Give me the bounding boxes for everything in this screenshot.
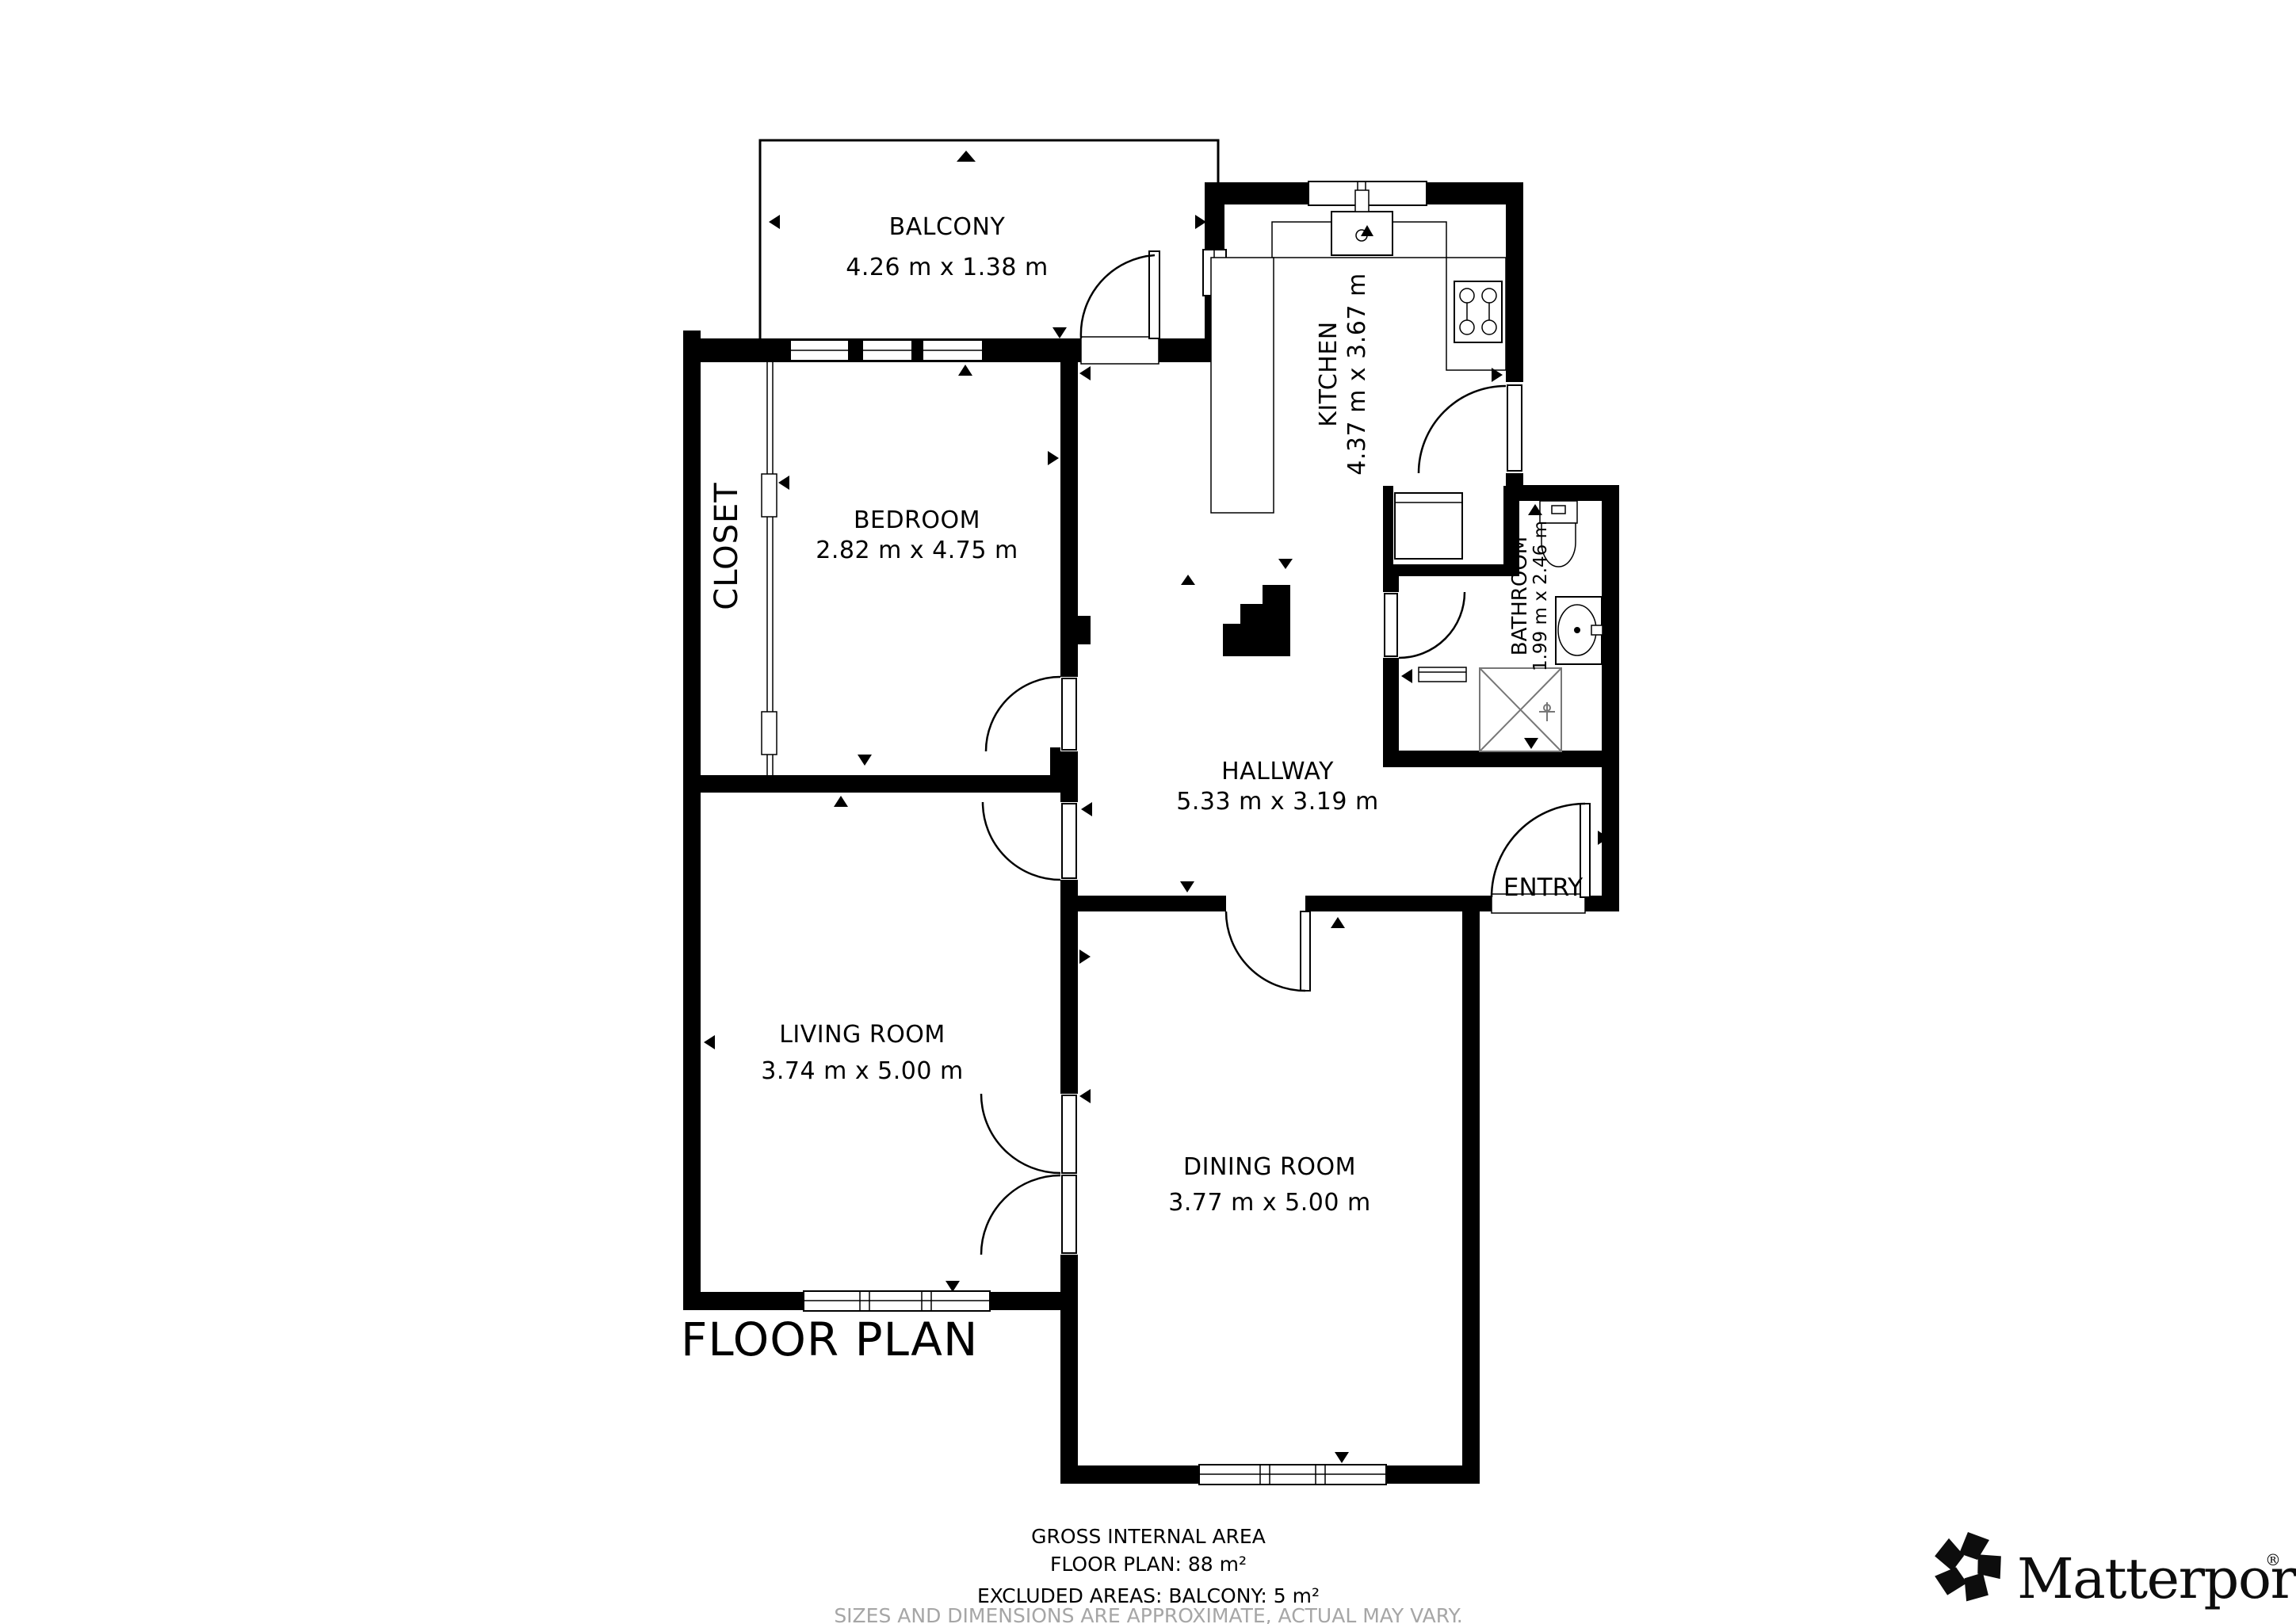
bathroom-sink <box>1556 597 1603 664</box>
stairs-icon <box>1181 559 1293 656</box>
matterport-logo-icon <box>1930 1532 2008 1607</box>
bathroom-door <box>1385 592 1465 658</box>
living-room-label: LIVING ROOM <box>779 1021 946 1049</box>
bedroom-dims: 2.82 m x 4.75 m <box>816 537 1018 564</box>
french-doors <box>981 1094 1076 1255</box>
living-window <box>804 1291 990 1311</box>
kitchen-service-door <box>1419 385 1522 473</box>
closet-divider <box>762 362 777 775</box>
footer: GROSS INTERNAL AREA FLOOR PLAN: 88 m² EX… <box>834 1525 1462 1624</box>
dining-window <box>1199 1465 1386 1485</box>
towel-shelf <box>1419 667 1466 682</box>
bathroom-dims: 1.99 m x 2.46 m <box>1530 521 1551 671</box>
stove <box>1454 281 1502 342</box>
bedroom-window <box>790 340 983 361</box>
bedroom-door <box>986 677 1076 751</box>
entry-label: ENTRY <box>1503 873 1583 902</box>
balcony-dims: 4.26 m x 1.38 m <box>846 254 1048 281</box>
washing-machine <box>1395 493 1462 559</box>
footer-disclaimer: SIZES AND DIMENSIONS ARE APPROXIMATE, AC… <box>834 1604 1462 1624</box>
hallway-label: HALLWAY <box>1221 758 1334 785</box>
dining-room-dims: 3.77 m x 5.00 m <box>1168 1189 1370 1217</box>
kitchen-label: KITCHEN <box>1315 321 1343 427</box>
dining-room-label: DINING ROOM <box>1183 1153 1356 1181</box>
footer-gross-area: GROSS INTERNAL AREA <box>1031 1525 1266 1548</box>
closet-label: CLOSET <box>709 482 745 609</box>
living-room-door <box>983 802 1076 880</box>
walls <box>683 182 1619 1484</box>
hallway-dims: 5.33 m x 3.19 m <box>1176 788 1378 816</box>
kitchen-dims: 4.37 m x 3.67 m <box>1343 273 1371 475</box>
matterport-logo-text: Matterport <box>2017 1546 2296 1611</box>
matterport-registered-mark: ® <box>2265 1550 2281 1569</box>
shower <box>1480 668 1561 751</box>
matterport-logo: Matterport ® <box>1930 1532 2296 1611</box>
balcony-door <box>1081 251 1159 364</box>
dining-room-door <box>1226 911 1310 991</box>
floor-plan-canvas: BALCONY 4.26 m x 1.38 m BEDROOM 2.82 m x… <box>0 0 2296 1624</box>
footer-floor-plan-area: FLOOR PLAN: 88 m² <box>1050 1553 1247 1576</box>
living-room-dims: 3.74 m x 5.00 m <box>761 1057 963 1085</box>
page-title: FLOOR PLAN <box>681 1313 978 1366</box>
balcony-label: BALCONY <box>889 213 1006 241</box>
bathroom-label: BATHROOM <box>1508 537 1532 655</box>
bedroom-label: BEDROOM <box>854 506 980 534</box>
